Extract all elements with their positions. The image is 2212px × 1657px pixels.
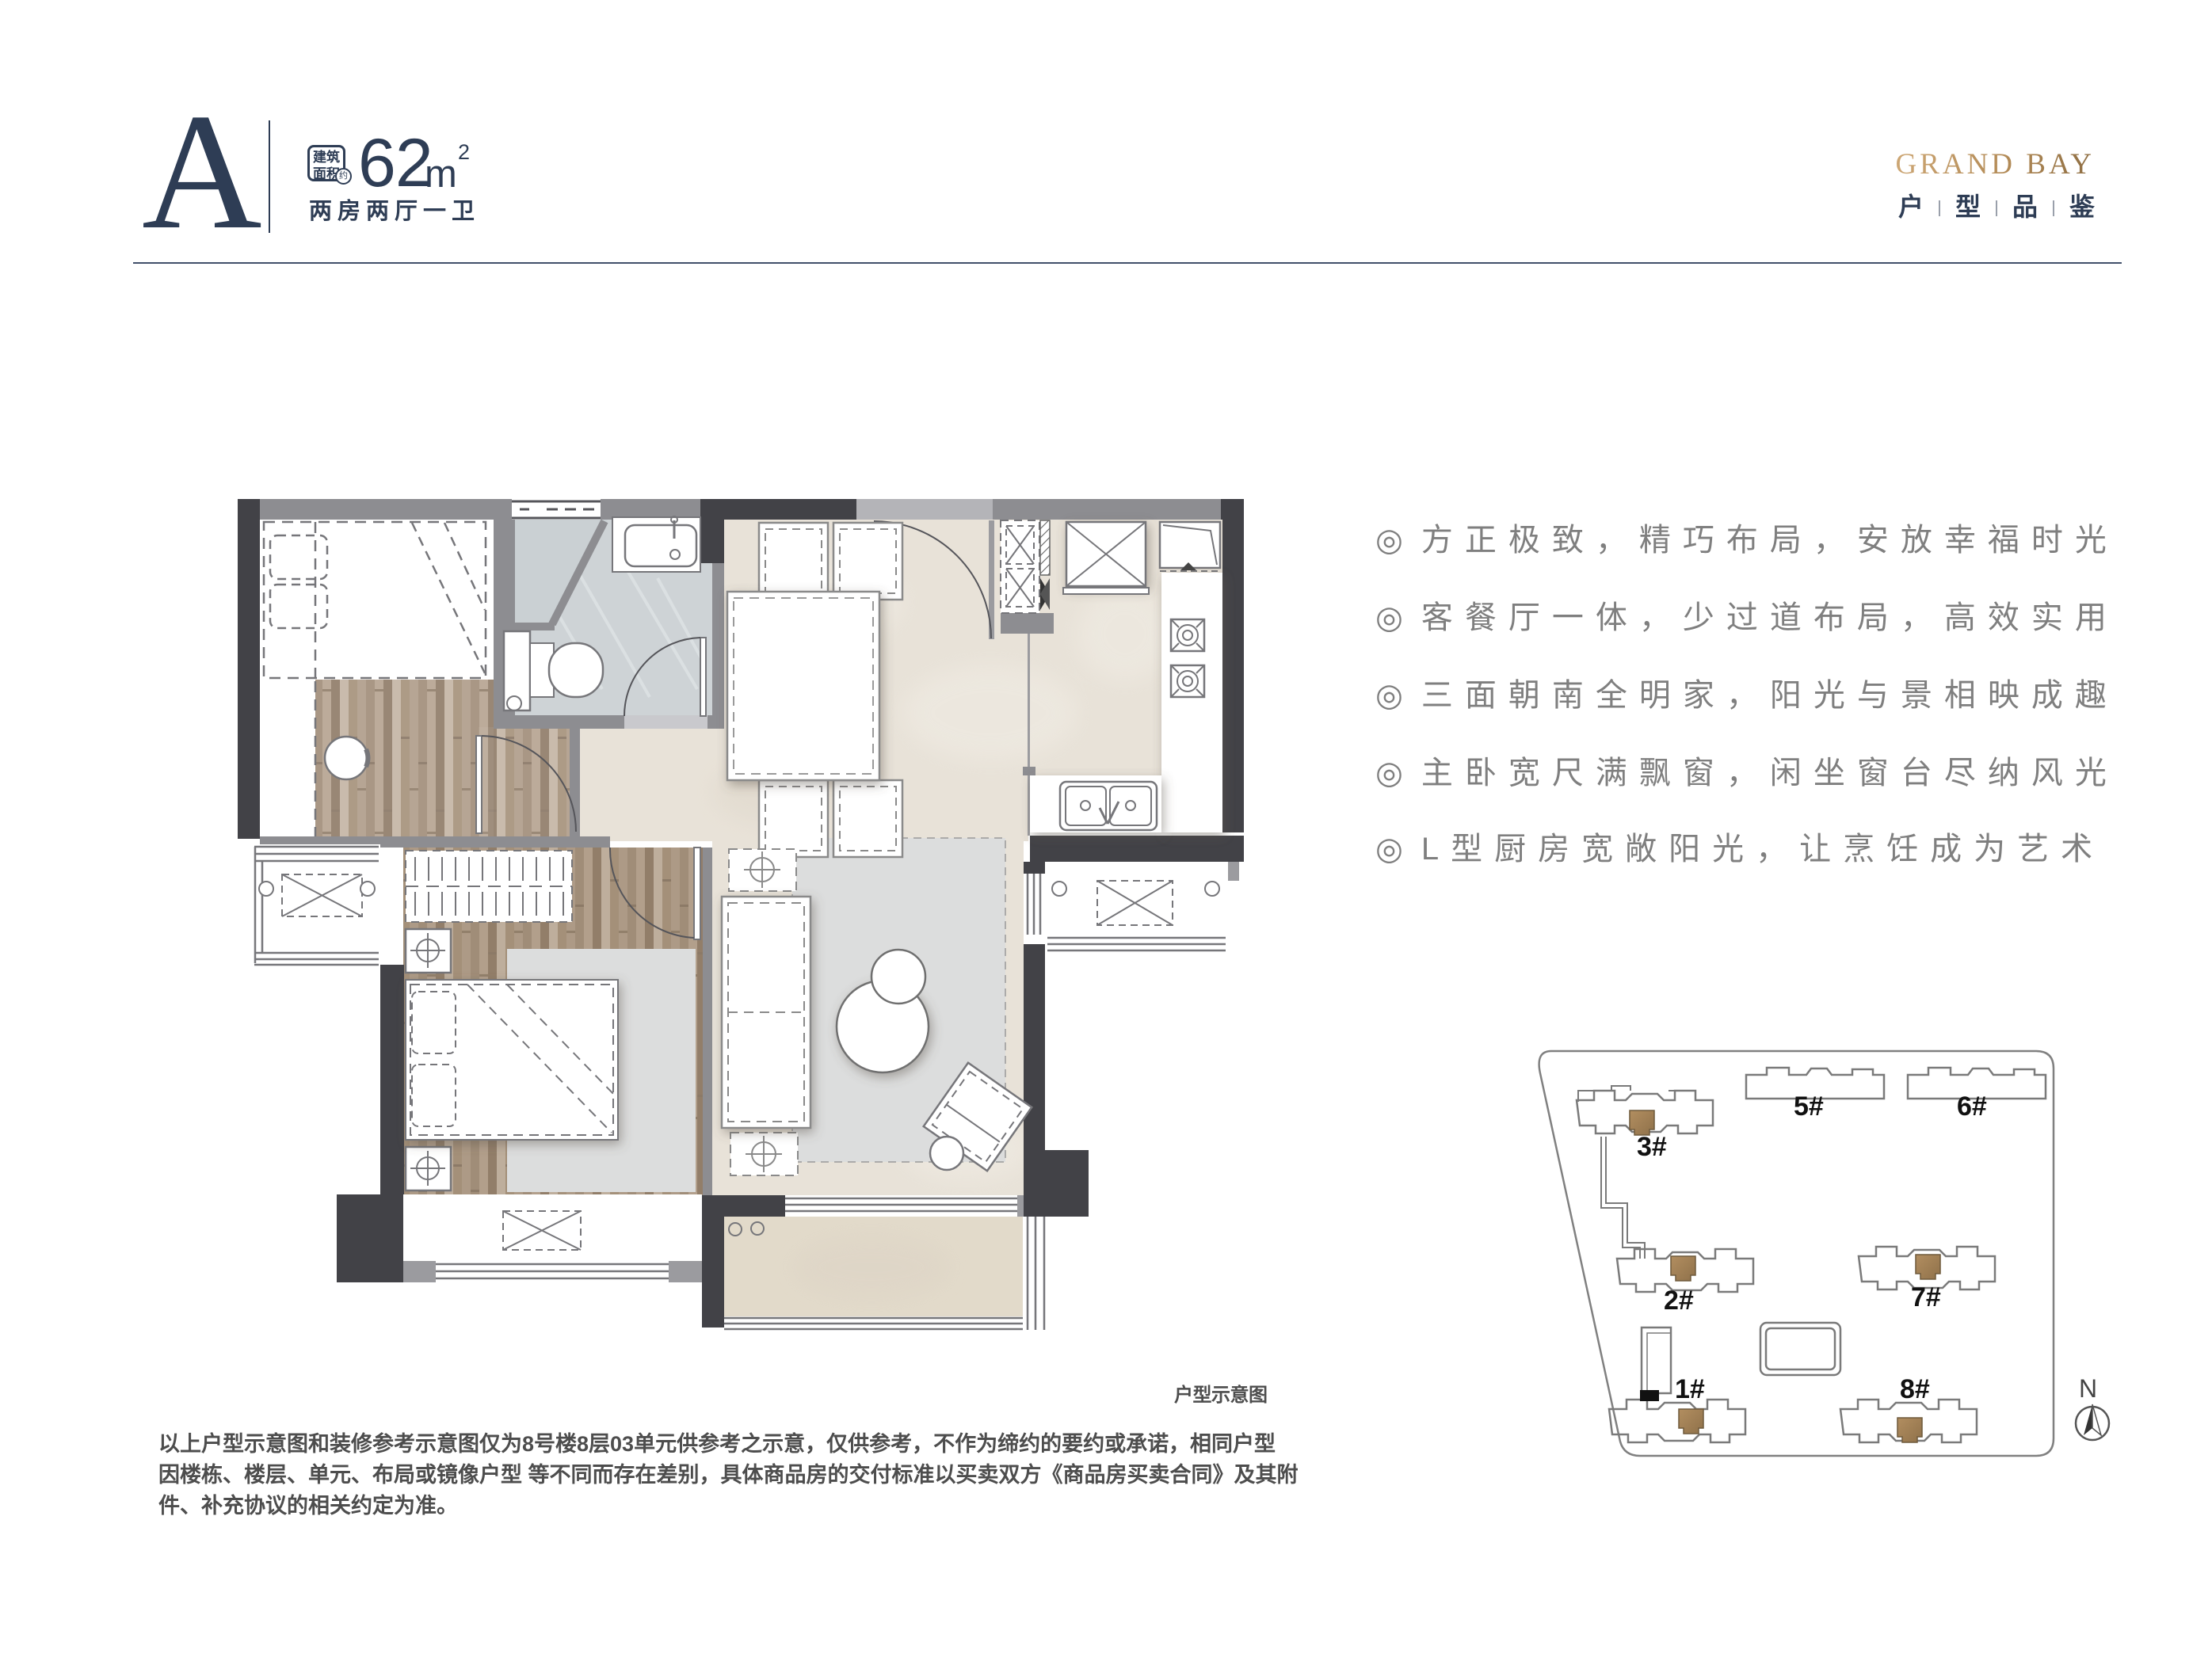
svg-text:7#: 7# [1911, 1282, 1941, 1312]
svg-text:1#: 1# [1675, 1374, 1705, 1404]
svg-text:N: N [2079, 1374, 2097, 1403]
svg-text:3#: 3# [1637, 1132, 1667, 1162]
svg-text:5#: 5# [1794, 1091, 1824, 1122]
svg-text:2#: 2# [1664, 1286, 1694, 1316]
svg-text:8#: 8# [1900, 1374, 1930, 1404]
svg-text:6#: 6# [1957, 1091, 1987, 1122]
